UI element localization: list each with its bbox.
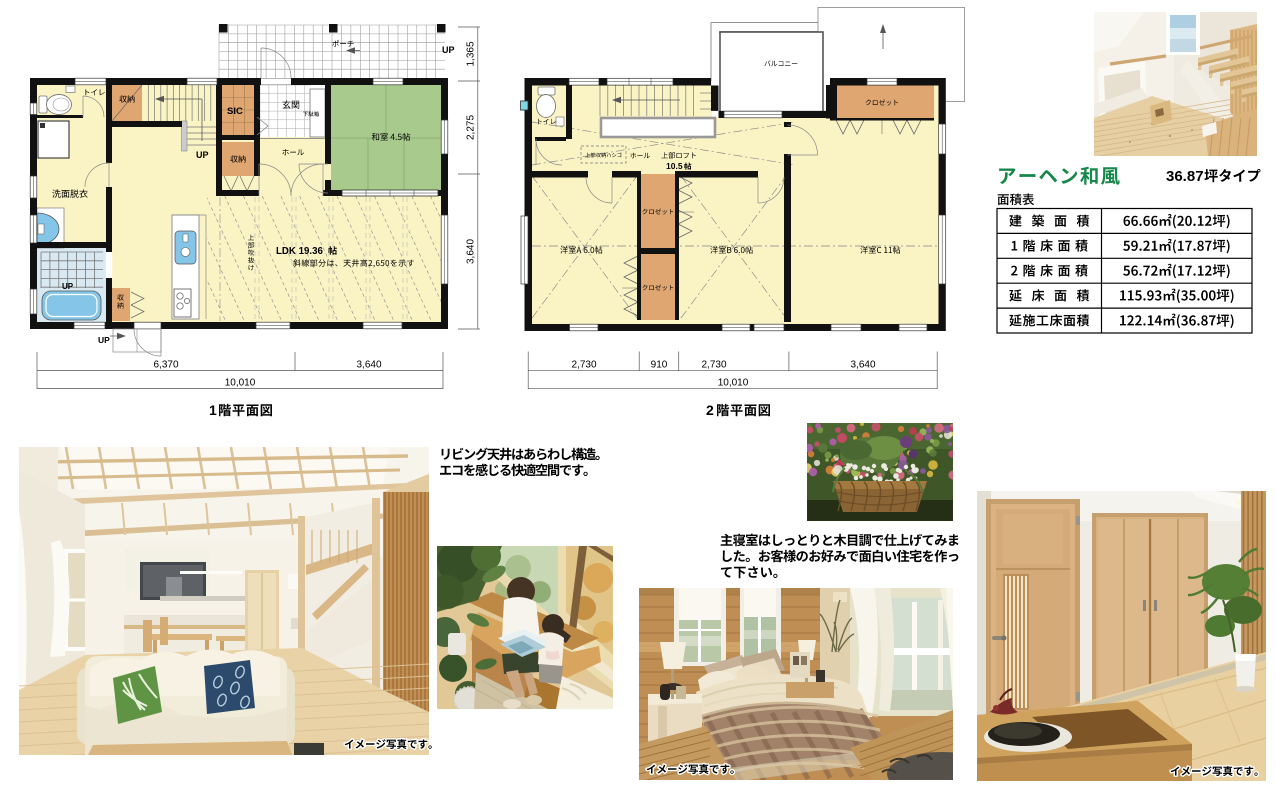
svg-text:UP: UP [98,335,110,345]
svg-text:UP: UP [442,45,455,55]
svg-text:UP: UP [196,150,209,160]
svg-text:10,010: 10,010 [225,378,256,389]
svg-text:36.87: 36.87 [1166,168,1204,185]
svg-text:UP: UP [62,282,74,291]
svg-text:3,640: 3,640 [356,360,381,371]
svg-text:2: 2 [706,402,714,418]
svg-text:2,730: 2,730 [701,360,726,371]
svg-text:2,275: 2,275 [466,115,477,140]
svg-text:SIC: SIC [227,106,243,117]
svg-text:3,640: 3,640 [850,360,875,371]
svg-text:10.5: 10.5 [666,161,683,171]
svg-text:910: 910 [651,360,668,371]
svg-text:1,365: 1,365 [466,41,477,66]
svg-text:3,640: 3,640 [466,239,477,264]
svg-text:10,010: 10,010 [718,378,749,389]
svg-text:2,730: 2,730 [571,360,596,371]
svg-text:6,370: 6,370 [153,360,178,371]
svg-text:1: 1 [209,402,217,418]
svg-text:LDK 19.36: LDK 19.36 [276,246,323,257]
